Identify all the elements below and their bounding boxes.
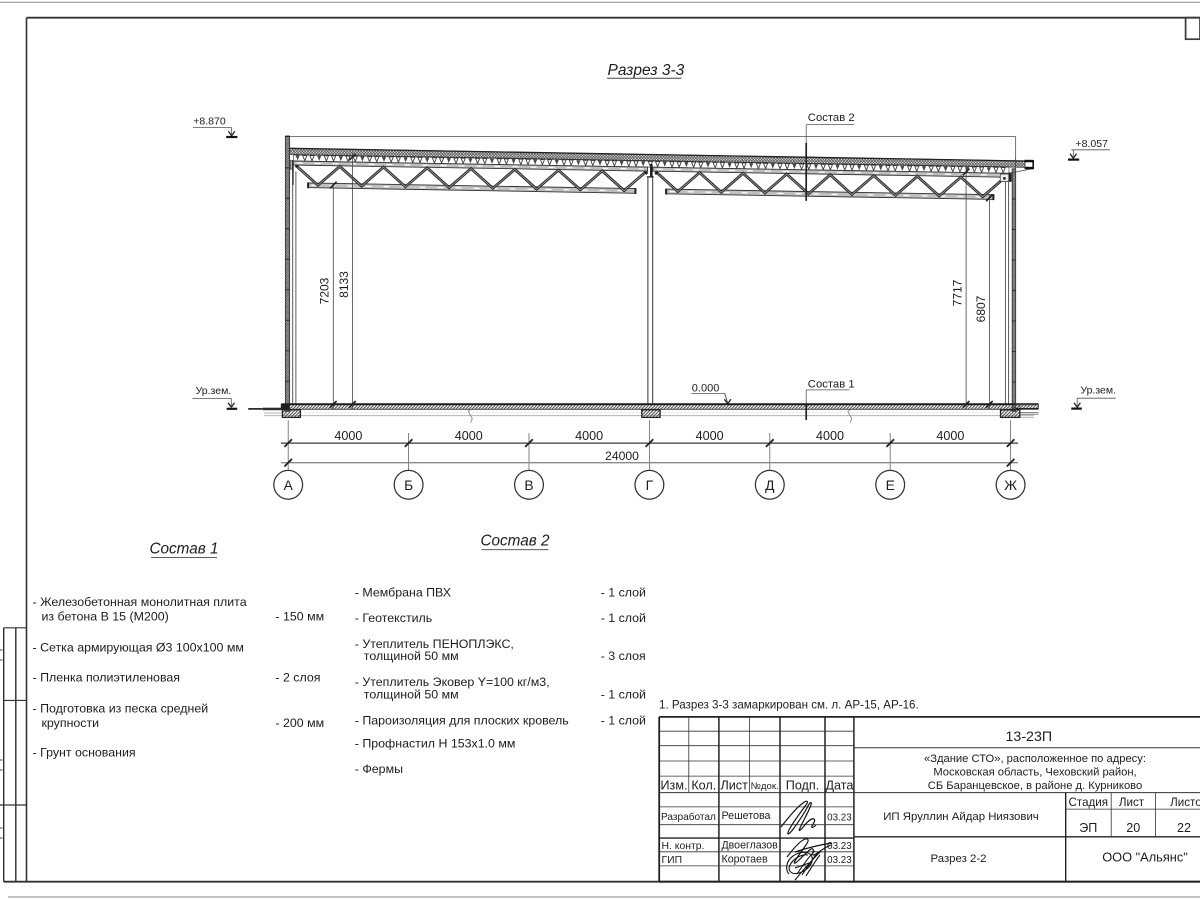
- svg-text:- Геотекстиль: - Геотекстиль: [355, 611, 432, 625]
- svg-text:Разработал: Разработал: [661, 811, 716, 823]
- svg-text:- 150 мм: - 150 мм: [275, 609, 324, 623]
- svg-text:Разрез 2-2: Разрез 2-2: [931, 853, 987, 865]
- svg-text:Подп.: Подп.: [786, 779, 819, 793]
- svg-text:Состав 2: Состав 2: [480, 532, 550, 549]
- svg-text:0.000: 0.000: [692, 382, 720, 394]
- svg-text:Разрез 3-3: Разрез 3-3: [608, 62, 685, 79]
- svg-text:- Пароизоляция для плоских кро: - Пароизоляция для плоских кровель: [355, 714, 569, 728]
- svg-text:+8.870: +8.870: [193, 116, 226, 128]
- svg-text:из бетона В 15 (М200): из бетона В 15 (М200): [42, 609, 169, 623]
- svg-text:ООО "Альянс": ООО "Альянс": [1102, 850, 1188, 865]
- svg-text:Двоеглазов: Двоеглазов: [722, 840, 779, 852]
- svg-text:Московская область, Чеховский: Московская область, Чеховский район,: [933, 766, 1136, 778]
- svg-text:- Грунт основания: - Грунт основания: [33, 746, 136, 760]
- svg-text:СБ Баранцевское, в районе д. К: СБ Баранцевское, в районе д. Курниково: [928, 780, 1142, 792]
- svg-text:ИП Яруллин Айдар Ниязович: ИП Яруллин Айдар Ниязович: [883, 811, 1039, 823]
- svg-text:- Мембрана ПВХ: - Мембрана ПВХ: [355, 586, 451, 600]
- svg-text:4000: 4000: [575, 429, 603, 443]
- svg-text:- Фермы: - Фермы: [355, 762, 403, 776]
- svg-text:- 1 слой: - 1 слой: [601, 714, 646, 728]
- svg-text:Ж: Ж: [1004, 478, 1017, 493]
- svg-text:- Профнастил Н 153х1.0 мм: - Профнастил Н 153х1.0 мм: [355, 737, 516, 751]
- svg-text:Изм.: Изм.: [661, 779, 688, 793]
- svg-text:4000: 4000: [334, 429, 362, 443]
- svg-text:Коротаев: Коротаев: [722, 853, 768, 865]
- svg-text:6807: 6807: [974, 295, 988, 322]
- svg-text:4000: 4000: [696, 429, 724, 443]
- svg-text:- 1 слой: - 1 слой: [601, 586, 646, 600]
- svg-text:4000: 4000: [936, 429, 964, 443]
- svg-text:7717: 7717: [951, 279, 965, 306]
- svg-text:Ур.зем.: Ур.зем.: [1080, 384, 1116, 396]
- svg-text:ГИП: ГИП: [662, 855, 683, 866]
- svg-text:Состав 2: Состав 2: [808, 112, 855, 124]
- svg-text:13-23П: 13-23П: [1006, 729, 1052, 745]
- svg-text:Е: Е: [886, 478, 895, 493]
- svg-text:1. Разрез 3-3 замаркирован см.: 1. Разрез 3-3 замаркирован см. л. АР-15,…: [659, 699, 919, 712]
- svg-text:- Сетка армирующая Ø3 100х100: - Сетка армирующая Ø3 100х100 мм: [33, 640, 244, 654]
- svg-text:№док.: №док.: [751, 781, 779, 792]
- svg-text:- 3 слоя: - 3 слоя: [601, 649, 646, 663]
- svg-text:+8.057: +8.057: [1076, 138, 1109, 150]
- svg-text:Ур.зем.: Ур.зем.: [196, 385, 232, 397]
- svg-text:Г: Г: [646, 478, 654, 493]
- svg-text:- 200 мм: - 200 мм: [275, 716, 324, 730]
- svg-text:Стадия: Стадия: [1069, 796, 1109, 809]
- svg-text:22: 22: [1177, 821, 1191, 835]
- svg-text:4000: 4000: [816, 429, 844, 443]
- svg-text:А: А: [284, 478, 294, 493]
- svg-text:Лист: Лист: [1119, 796, 1145, 809]
- svg-text:- 2 слоя: - 2 слоя: [275, 671, 320, 685]
- svg-text:4000: 4000: [455, 429, 483, 443]
- svg-text:ЭП: ЭП: [1079, 821, 1097, 835]
- svg-text:Кол.: Кол.: [691, 779, 716, 793]
- svg-text:«Здание СТО», расположенное по: «Здание СТО», расположенное по адресу:: [924, 753, 1146, 765]
- svg-text:03.23: 03.23: [827, 855, 852, 866]
- svg-text:- Железобетонная монолитная п: - Железобетонная монолитная плита: [33, 595, 247, 609]
- svg-text:Состав 1: Состав 1: [808, 379, 855, 391]
- svg-text:Состав 1: Состав 1: [149, 540, 218, 557]
- svg-text:Решетова: Решетова: [722, 810, 771, 822]
- svg-text:крупности: крупности: [42, 716, 100, 730]
- svg-text:толщиной 50 мм: толщиной 50 мм: [364, 687, 459, 701]
- svg-text:Листов: Листов: [1170, 796, 1200, 809]
- svg-text:20: 20: [1126, 821, 1140, 835]
- svg-text:Дата: Дата: [825, 779, 853, 793]
- svg-text:24000: 24000: [605, 449, 639, 463]
- svg-text:толщиной 50 мм: толщиной 50 мм: [364, 649, 459, 663]
- svg-text:Лист: Лист: [721, 779, 749, 793]
- svg-text:7203: 7203: [318, 277, 332, 304]
- svg-text:8133: 8133: [337, 271, 351, 298]
- svg-text:- 1 слой: - 1 слой: [601, 611, 646, 625]
- svg-text:В: В: [524, 478, 533, 493]
- svg-text:- 1 слой: - 1 слой: [601, 687, 646, 701]
- svg-text:Б: Б: [404, 478, 413, 493]
- svg-text:Д: Д: [765, 478, 775, 493]
- svg-text:- Подготовка из песка средней: - Подготовка из песка средней: [33, 702, 209, 716]
- svg-text:Н. контр.: Н. контр.: [662, 841, 705, 852]
- svg-text:- Пленка полиэтиленовая: - Пленка полиэтиленовая: [33, 671, 181, 685]
- svg-text:03.23: 03.23: [827, 813, 852, 824]
